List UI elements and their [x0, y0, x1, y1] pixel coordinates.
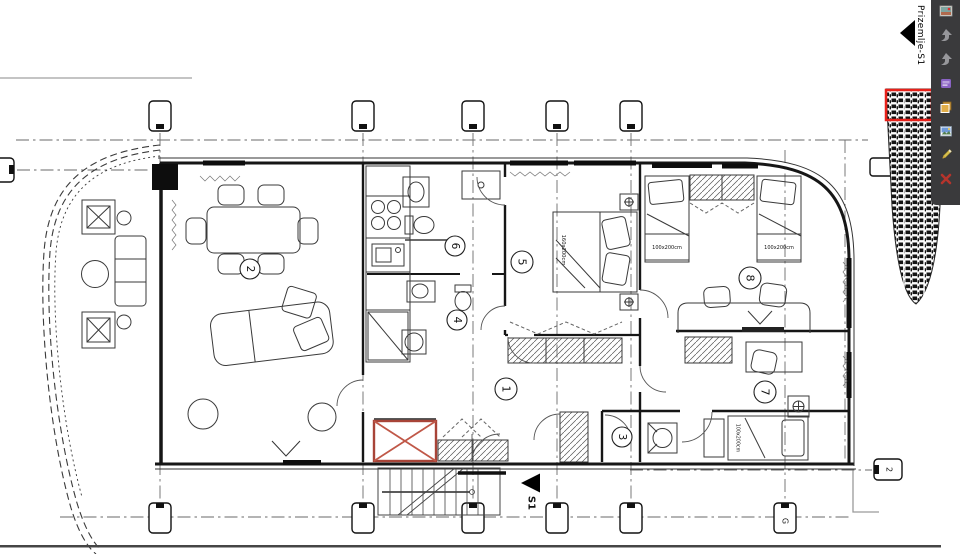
armchair: [82, 200, 115, 234]
windows: [152, 161, 852, 466]
svg-text:7: 7: [759, 389, 772, 396]
hallway: [438, 412, 588, 462]
washing-machine: [648, 423, 677, 453]
washbasin: [403, 177, 429, 207]
room-circle-3: 3: [612, 427, 632, 447]
room-circle-1: 1: [495, 378, 517, 400]
room-circle-5: 5: [511, 251, 533, 273]
close-icon[interactable]: [937, 170, 955, 188]
desk: [746, 342, 802, 372]
nightstand: [620, 294, 638, 310]
room-circle-8: 8: [739, 267, 761, 289]
room-circle-7: 7: [754, 381, 776, 403]
nightstand: [788, 396, 809, 417]
single-bed: 100x200cm: [728, 416, 808, 460]
boiler: [402, 330, 426, 354]
wardrobe: [685, 337, 732, 363]
room-7: [685, 337, 809, 417]
page-title: Prizemlje-S1: [915, 5, 925, 66]
single-bed-size-label: 100x200cm: [735, 424, 741, 453]
cad-viewer: G 2: [0, 0, 960, 554]
outdoor-sofa: [115, 236, 146, 306]
closet: [560, 412, 588, 462]
room-3: 100x200cm: [648, 416, 808, 460]
column: [152, 164, 178, 190]
svg-text:2: 2: [244, 266, 256, 273]
single-bed-size-label: 100x200cm: [652, 245, 682, 251]
cooktop: [372, 201, 401, 230]
single-bed-size-label: 100x200cm: [764, 245, 794, 251]
room-circle-4: 4: [447, 310, 467, 330]
washbasin: [407, 281, 435, 302]
room-circle-6: 6: [445, 236, 465, 256]
double-bed-size-label: 160x200cm: [560, 235, 566, 266]
page-nav-arrow-icon[interactable]: [900, 20, 915, 46]
terrace-furniture: [82, 200, 147, 348]
svg-text:5: 5: [516, 259, 529, 266]
single-bed: 100x200cm: [757, 176, 801, 262]
panel-icon[interactable]: [937, 74, 955, 92]
toilet: [455, 285, 471, 311]
single-bed: 100x200cm: [645, 176, 689, 262]
sheet-lines: [0, 78, 941, 548]
grid-label-g: G: [781, 518, 790, 524]
desk-chair: [750, 349, 778, 376]
desk: [678, 282, 810, 333]
armchair: [82, 312, 115, 348]
round-table: [82, 261, 109, 288]
room-circle-2: 2: [240, 259, 260, 279]
grid-label-2: 2: [885, 467, 894, 472]
bathroom-6: [403, 171, 500, 240]
poufs: [188, 399, 336, 431]
nightstand: [620, 194, 638, 210]
photo-icon[interactable]: [937, 2, 955, 20]
shower: [462, 171, 500, 199]
nightstand: [704, 419, 724, 457]
section-label: S1: [526, 496, 537, 510]
drawing-canvas[interactable]: G 2: [0, 0, 960, 554]
sheet-edge: [0, 545, 941, 547]
planter: [117, 315, 131, 329]
svg-text:1: 1: [500, 386, 513, 393]
wardrobe: [508, 338, 622, 363]
elevator-shaft: [374, 419, 436, 461]
side-toolbar: [931, 0, 960, 205]
svg-text:4: 4: [451, 317, 463, 324]
lounge-sofa: [207, 281, 335, 367]
bedroom-5: 160x200cm: [508, 194, 638, 363]
planter: [117, 211, 131, 225]
back-arrow-icon[interactable]: [937, 26, 955, 44]
svg-text:8: 8: [744, 275, 757, 282]
copy-icon[interactable]: [937, 98, 955, 116]
image-icon[interactable]: [937, 122, 955, 140]
sink: [372, 244, 404, 266]
back-arrow-2-icon[interactable]: [937, 50, 955, 68]
tv-mark: [272, 441, 300, 456]
dining-table: [207, 207, 300, 253]
svg-text:3: 3: [616, 434, 628, 441]
pencil-icon[interactable]: [937, 146, 955, 164]
toilet: [405, 216, 434, 234]
svg-text:6: 6: [449, 243, 461, 250]
